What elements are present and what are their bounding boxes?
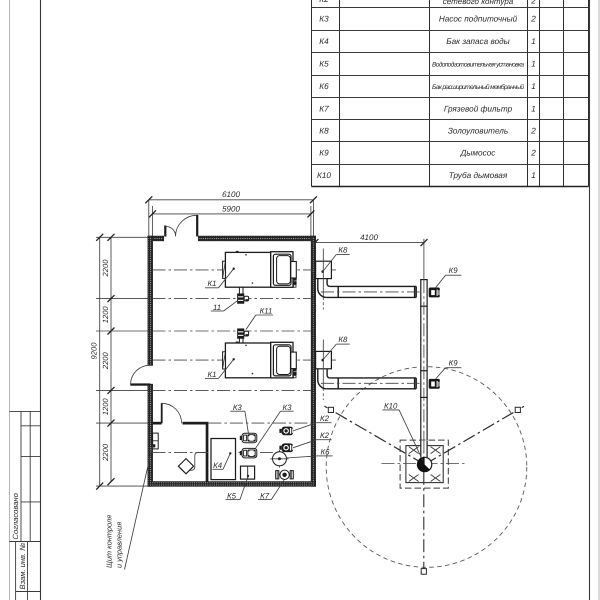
svg-text:К6: К6	[321, 447, 331, 456]
svg-text:2: 2	[530, 127, 536, 136]
svg-text:К10: К10	[317, 171, 331, 180]
svg-text:2: 2	[530, 15, 536, 24]
svg-text:Бак запаса воды: Бак запаса воды	[446, 37, 509, 46]
svg-text:К4: К4	[319, 37, 329, 46]
svg-text:5900: 5900	[222, 204, 240, 213]
svg-text:К2: К2	[319, 0, 329, 4]
svg-text:К5: К5	[227, 491, 237, 500]
svg-text:Насос подпиточный: Насос подпиточный	[439, 15, 518, 24]
svg-text:Согласовано: Согласовано	[11, 493, 20, 539]
svg-text:К3: К3	[283, 403, 293, 412]
svg-text:Золоуловитель: Золоуловитель	[448, 127, 508, 136]
svg-text:К9: К9	[449, 266, 459, 275]
svg-text:К8: К8	[338, 335, 348, 344]
svg-text:2: 2	[530, 149, 536, 158]
svg-text:1: 1	[531, 105, 536, 114]
svg-text:К2: К2	[320, 431, 330, 440]
svg-text:1: 1	[531, 171, 536, 180]
svg-text:К8: К8	[338, 246, 348, 255]
svg-text:1: 1	[531, 60, 536, 69]
svg-text:9200: 9200	[90, 342, 99, 360]
svg-text:1200: 1200	[101, 306, 110, 324]
svg-text:и управления: и управления	[115, 522, 124, 568]
svg-text:2200: 2200	[101, 443, 110, 462]
svg-text:1: 1	[531, 82, 536, 91]
svg-text:Водоподготовительная установка: Водоподготовительная установка	[432, 62, 524, 69]
svg-text:К5: К5	[319, 60, 329, 69]
svg-text:К9: К9	[449, 359, 459, 368]
svg-text:Взам. инв. №: Взам. инв. №	[18, 543, 27, 590]
svg-text:1200: 1200	[101, 398, 110, 416]
svg-text:К3: К3	[319, 15, 329, 24]
svg-text:К1: К1	[208, 279, 217, 288]
svg-text:К4: К4	[213, 461, 223, 470]
svg-text:К8: К8	[319, 127, 329, 136]
svg-text:1: 1	[531, 37, 536, 46]
svg-text:Щит контроля: Щит контроля	[105, 515, 114, 568]
svg-text:К10: К10	[384, 402, 398, 411]
svg-text:2: 2	[530, 0, 536, 6]
svg-text:К9: К9	[319, 149, 329, 158]
svg-text:2200: 2200	[101, 259, 110, 278]
svg-text:К2: К2	[320, 414, 330, 423]
svg-text:К11: К11	[260, 307, 273, 316]
svg-text:К1: К1	[208, 370, 217, 379]
svg-text:11: 11	[213, 303, 221, 312]
svg-text:К7: К7	[260, 491, 270, 500]
svg-text:2200: 2200	[101, 351, 110, 370]
svg-text:Труба дымовая: Труба дымовая	[449, 171, 508, 180]
svg-text:К3: К3	[233, 403, 243, 412]
svg-text:4100: 4100	[360, 233, 378, 242]
svg-text:К6: К6	[319, 82, 329, 91]
svg-text:К7: К7	[319, 105, 329, 114]
svg-text:сетевого контура: сетевого контура	[443, 0, 514, 6]
svg-text:Дымосос: Дымосос	[460, 149, 496, 158]
svg-text:Бак расширительный мембранный: Бак расширительный мембранный	[432, 84, 524, 91]
svg-text:6100: 6100	[222, 190, 240, 199]
svg-text:Грязевой фильтр: Грязевой фильтр	[444, 105, 513, 114]
